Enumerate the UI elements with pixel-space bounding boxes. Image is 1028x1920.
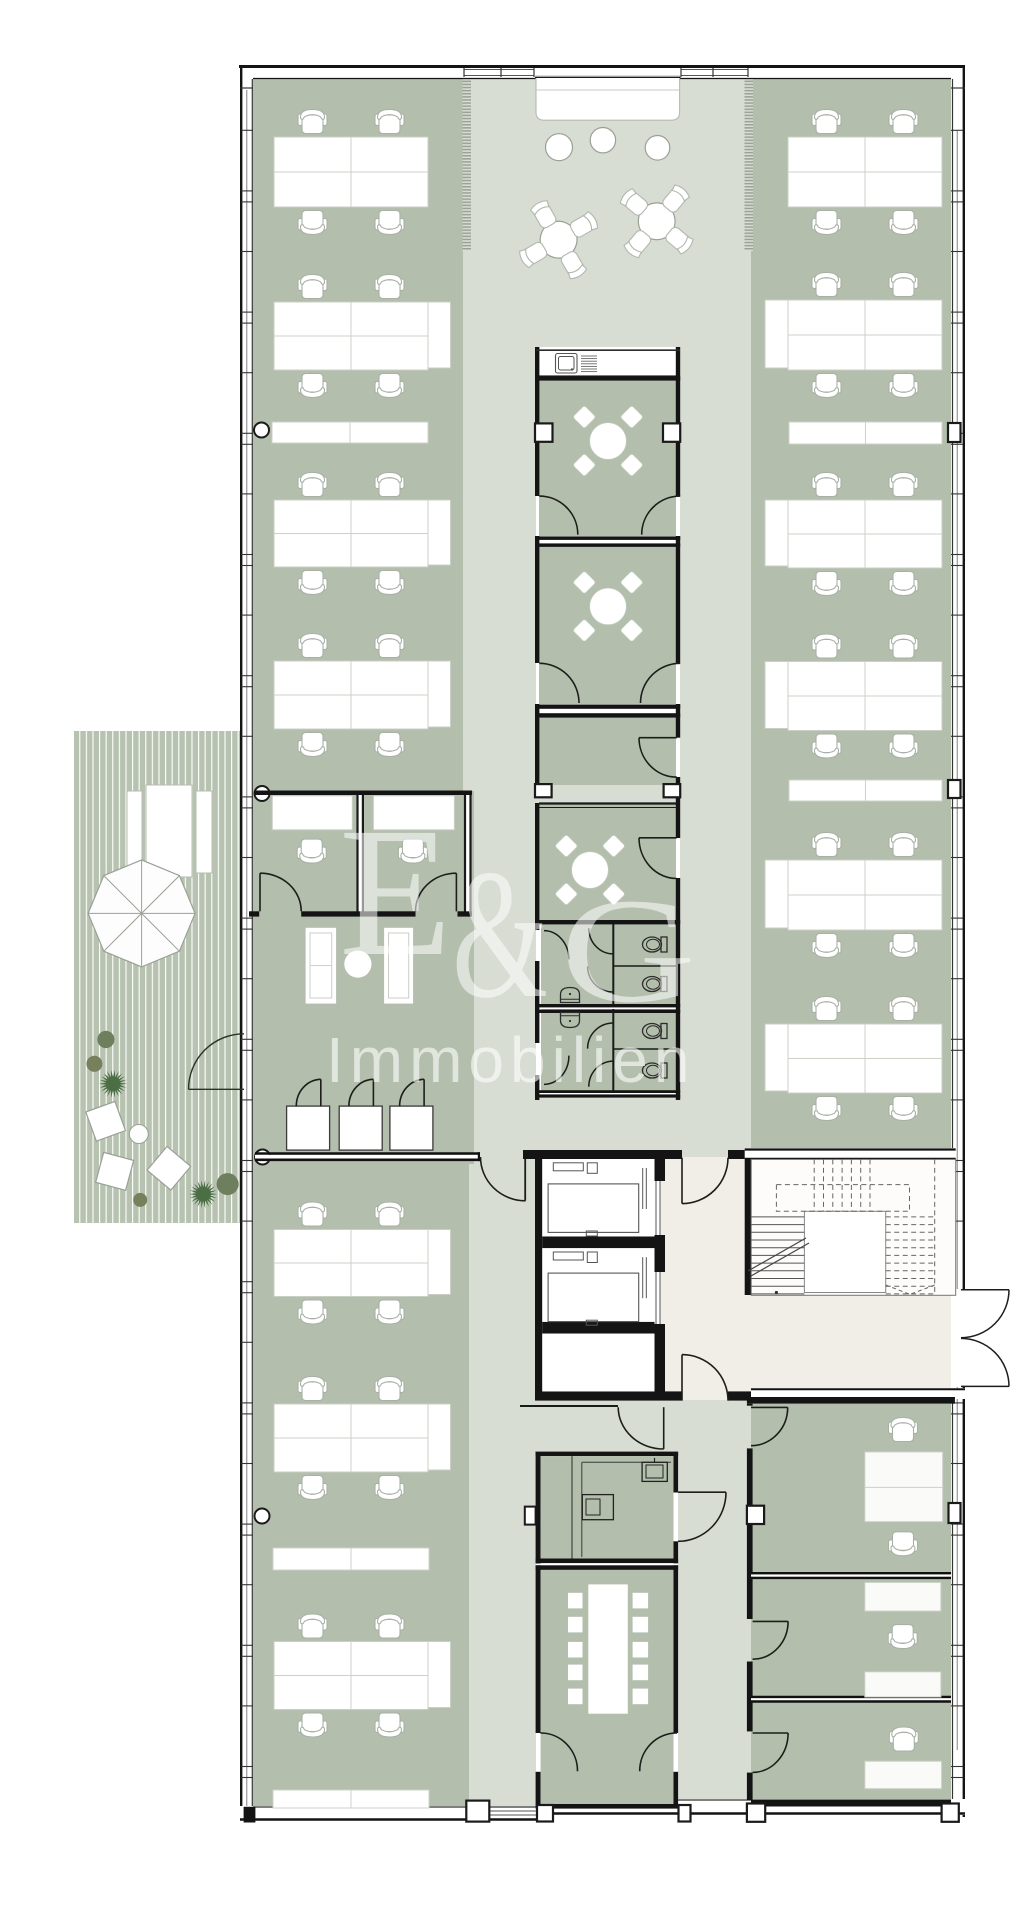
svg-text:E: E xyxy=(339,790,452,995)
svg-text:&: & xyxy=(452,832,548,1037)
svg-text:G: G xyxy=(560,868,696,1034)
svg-text:Immobilien: Immobilien xyxy=(326,1024,695,1096)
